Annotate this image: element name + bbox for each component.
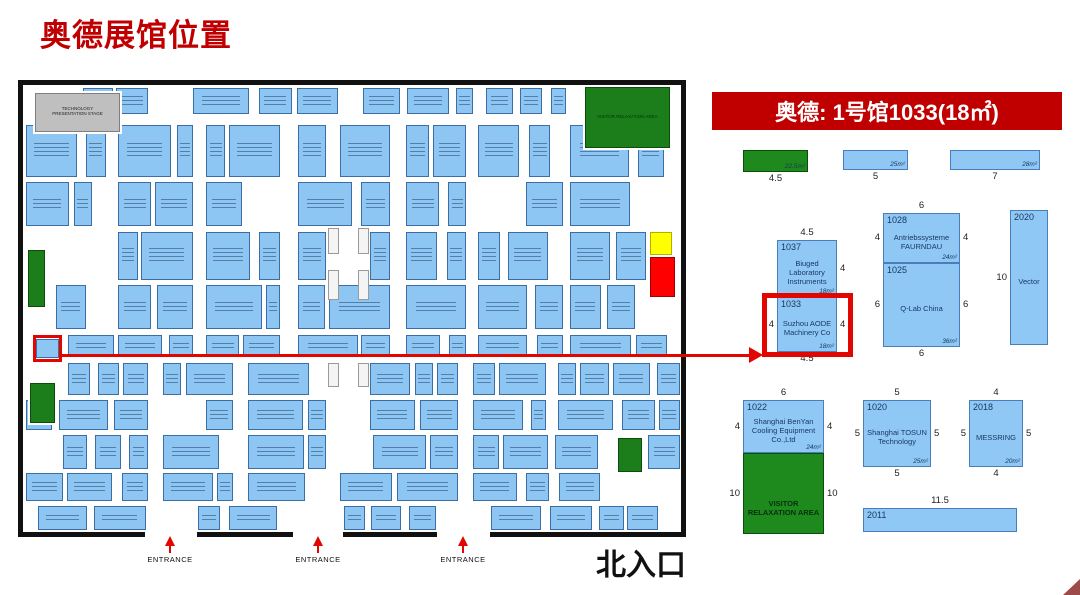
dim-bottom: 4.5: [743, 173, 808, 184]
booth-text-scribble: [237, 515, 270, 521]
map-booth: [193, 88, 249, 114]
booth-text-scribble: [485, 143, 513, 159]
map-booth: [415, 363, 433, 395]
booth-text-scribble: [486, 302, 519, 312]
booth-text-scribble: [102, 374, 116, 384]
pillar: [358, 363, 369, 387]
map-booth: [68, 363, 90, 395]
booth-text-scribble: [486, 343, 519, 349]
map-booth: [123, 363, 148, 395]
map-booth: [206, 232, 250, 280]
booth-text-scribble: [369, 96, 394, 106]
booth-text-scribble: [427, 410, 452, 420]
booth-text-scribble: [411, 248, 431, 264]
booth-text-scribble: [100, 447, 116, 457]
map-booth: [551, 88, 566, 114]
booth-text-scribble: [478, 447, 495, 457]
pointer-arrowhead-icon: [749, 347, 763, 363]
map-booth: [94, 506, 146, 530]
map-booth: [430, 435, 458, 469]
booth-text-scribble: [125, 343, 155, 349]
booth-text-scribble: [257, 447, 295, 457]
booth-text-scribble: [77, 199, 88, 209]
booth-text-scribble: [418, 374, 429, 384]
map-booth: [406, 125, 429, 177]
map-booth: [163, 435, 219, 469]
map-booth: [229, 506, 278, 530]
booth-text-scribble: [374, 248, 387, 264]
map-booth: [559, 473, 600, 501]
entrance-marker: ENTRANCE: [431, 536, 495, 564]
dim-bottom: 5: [843, 171, 908, 182]
booth-text-scribble: [366, 343, 385, 349]
map-booth: [580, 363, 610, 395]
booth-text-scribble: [382, 447, 418, 457]
booth-text-scribble: [180, 143, 190, 159]
booth-text-scribble: [67, 447, 82, 457]
booth-text-scribble: [534, 410, 543, 420]
booth-text-scribble: [414, 515, 431, 521]
booth-text-scribble: [410, 143, 424, 159]
booth-text-scribble: [459, 96, 469, 106]
booth-text-scribble: [566, 482, 593, 492]
map-booth: [259, 88, 292, 114]
map-booth: [370, 400, 415, 430]
booth-text-scribble: [127, 143, 162, 159]
map-booth: [118, 125, 171, 177]
booth-text-scribble: [120, 410, 142, 420]
dim-left: 5: [845, 428, 860, 439]
map-booth: [26, 182, 69, 226]
map-booth: [118, 232, 138, 280]
booth-text-scribble: [173, 343, 189, 349]
booth-text-scribble: [604, 515, 620, 521]
map-booth: [526, 473, 550, 501]
map-booth: [67, 473, 112, 501]
map-booth: [622, 400, 654, 430]
dim-right: 4: [840, 263, 855, 274]
booth-area: 36m²: [942, 338, 957, 345]
booth-text-scribble: [452, 199, 463, 209]
dim-top: 6: [743, 387, 824, 398]
map-booth: [478, 125, 519, 177]
booth-text-scribble: [412, 343, 435, 349]
map-booth: [520, 88, 541, 114]
booth-text-scribble: [303, 302, 320, 312]
map-booth: [297, 88, 338, 114]
map-border-top: [18, 80, 686, 85]
corner-graphic: [1063, 579, 1080, 595]
map-booth: [409, 506, 436, 530]
map-booth: [129, 435, 148, 469]
booth-text-scribble: [127, 482, 144, 492]
detail-booth-green-bar: 22.5m²: [743, 150, 808, 172]
map-booth: [163, 363, 181, 395]
green-area-left-lower: [30, 383, 55, 423]
map-booth: [63, 435, 87, 469]
technology-presentation-stage-label: TECHNOLOGY PRESENTATION STAGE: [46, 107, 108, 118]
map-border-bottom-segment: [343, 532, 437, 537]
entrance-marker: ENTRANCE: [138, 536, 202, 564]
map-booth: [340, 125, 390, 177]
map-booth: [499, 363, 546, 395]
booth-text-scribble: [122, 96, 143, 106]
booth-text-scribble: [452, 343, 462, 349]
dim-left: 6: [865, 299, 880, 310]
map-booth: [206, 125, 225, 177]
map-booth: [308, 400, 326, 430]
booth-text-scribble: [220, 482, 230, 492]
booth-text-scribble: [482, 248, 496, 264]
booth-name: Shanghai TOSUN Technology: [864, 401, 930, 466]
map-booth: [198, 506, 220, 530]
map-booth: [627, 506, 658, 530]
dim-left: 5: [951, 428, 966, 439]
map-booth: [95, 435, 120, 469]
booth-text-scribble: [619, 374, 643, 384]
entrance-label: ENTRANCE: [138, 555, 202, 564]
pillar: [328, 228, 339, 254]
detail-booth-1020: 1020Shanghai TOSUN Technology25m²: [863, 400, 931, 467]
booth-text-scribble: [89, 143, 102, 159]
map-booth: [98, 363, 120, 395]
map-booth: [406, 232, 437, 280]
booth-text-scribble: [149, 248, 184, 264]
map-booth: [370, 232, 390, 280]
north-entrance-label: 北入口: [596, 540, 686, 584]
booth-text-scribble: [481, 410, 515, 420]
booth-number: 2011: [867, 510, 886, 520]
dim-right: 4: [827, 421, 842, 432]
map-booth: [26, 125, 77, 177]
pillar: [328, 270, 339, 300]
booth-text-scribble: [171, 482, 205, 492]
detail-booth-1028: 1028Antriebssysteme FAURNDAU24m²: [883, 213, 960, 263]
booth-text-scribble: [76, 343, 107, 349]
map-booth: [433, 125, 466, 177]
map-booth: [361, 182, 390, 226]
map-border-bottom-segment: [197, 532, 293, 537]
booth-text-scribble: [32, 482, 57, 492]
map-booth: [340, 473, 392, 501]
slide: 奥德展馆位置 TECHNOLOGY PRESENTATION STAGEVISI…: [0, 0, 1080, 595]
map-booth: [657, 363, 680, 395]
booth-text-scribble: [303, 248, 321, 264]
map-booth: [550, 506, 592, 530]
map-booth: [570, 182, 630, 226]
entrance-label: ENTRANCE: [286, 555, 350, 564]
booth-text-scribble: [632, 515, 652, 521]
booth-text-scribble: [269, 302, 278, 312]
booth-text-scribble: [491, 96, 508, 106]
booth-text-scribble: [377, 410, 407, 420]
map-booth: [486, 88, 513, 114]
map-booth: [397, 473, 458, 501]
booth-area: 24m²: [806, 444, 821, 451]
booth-text-scribble: [212, 343, 234, 349]
booth-area: 25m²: [913, 458, 928, 465]
yellow-marker: [650, 232, 672, 255]
booth-text-scribble: [557, 515, 585, 521]
entrance-arrow-icon: [313, 536, 323, 546]
booth-text-scribble: [621, 248, 641, 264]
page-title: 奥德展馆位置: [40, 10, 232, 55]
booth-area: 28m²: [1022, 161, 1037, 168]
map-booth: [478, 285, 527, 329]
dim-right: 5: [934, 428, 949, 439]
map-booth: [206, 285, 262, 329]
booth-text-scribble: [562, 447, 590, 457]
booth-text-scribble: [567, 410, 604, 420]
booth-text-scribble: [439, 143, 461, 159]
detail-booth-2018: 2018MESSRING20m²: [969, 400, 1023, 467]
booth-text-scribble: [575, 302, 595, 312]
booth-text-scribble: [308, 343, 348, 349]
map-border-bottom-segment: [18, 532, 145, 537]
map-booth: [407, 88, 449, 114]
map-booth: [531, 400, 546, 430]
booth-text-scribble: [561, 374, 572, 384]
entrance-arrow-icon: [165, 536, 175, 546]
map-booth: [420, 400, 458, 430]
booth-name: MESSRING: [970, 401, 1022, 466]
booth-text-scribble: [237, 143, 271, 159]
booth-text-scribble: [202, 96, 240, 106]
map-booth: [206, 182, 242, 226]
booth-text-scribble: [506, 374, 538, 384]
booth-text-scribble: [407, 482, 448, 492]
booth-text-scribble: [435, 447, 453, 457]
map-booth: [558, 400, 613, 430]
booth-text-scribble: [499, 515, 533, 521]
detail-booth-bar-25: 25m²: [843, 150, 908, 170]
entrance-marker: ENTRANCE: [286, 536, 350, 564]
booth-text-scribble: [532, 199, 557, 209]
pillar: [358, 270, 369, 300]
map-booth: [86, 125, 106, 177]
booth-name: VISITOR RELAXATION AREA: [744, 454, 823, 533]
map-booth: [456, 88, 473, 114]
entrance-arrow-stem: [169, 546, 171, 553]
booth-text-scribble: [263, 248, 276, 264]
booth-text-scribble: [34, 143, 68, 159]
dim-right: 6: [963, 299, 978, 310]
map-booth: [217, 473, 233, 501]
booth-text-scribble: [412, 199, 434, 209]
map-booth: [38, 506, 87, 530]
booth-text-scribble: [67, 410, 99, 420]
map-booth: [526, 182, 563, 226]
booth-text-scribble: [307, 199, 344, 209]
booth-name: Vector: [1011, 211, 1047, 344]
map-border-right: [681, 80, 686, 537]
detail-booth-2020: 2020Vector: [1010, 210, 1048, 345]
map-booth: [248, 473, 305, 501]
map-booth: [373, 435, 427, 469]
map-booth: [157, 285, 193, 329]
map-booth: [473, 435, 499, 469]
booth-text-scribble: [580, 199, 621, 209]
map-booth: [447, 232, 466, 280]
pointer-line: [61, 354, 749, 357]
booth-text-scribble: [524, 96, 537, 106]
booth-text-scribble: [161, 199, 186, 209]
map-booth: [259, 232, 280, 280]
booth-text-scribble: [249, 343, 274, 349]
booth-area: 25m²: [890, 161, 905, 168]
booth-area: 24m²: [942, 254, 957, 261]
booth-text-scribble: [257, 482, 296, 492]
map-booth: [163, 473, 213, 501]
booth-text-scribble: [311, 447, 322, 457]
booth-text-scribble: [554, 96, 563, 106]
detail-panel: 奥德: 1号馆1033(18㎡) 22.5m²4.525m²528m²71037…: [710, 85, 1078, 560]
booth-text-scribble: [416, 302, 457, 312]
map-booth: [529, 125, 550, 177]
detail-booth-1037: 1037Biuged Laboratory Instruments18m²: [777, 240, 837, 297]
booth-text-scribble: [641, 343, 661, 349]
map-booth: [535, 285, 563, 329]
booth-text-scribble: [339, 302, 380, 312]
booth-text-scribble: [303, 96, 331, 106]
booth-text-scribble: [661, 374, 676, 384]
map-booth: [206, 400, 233, 430]
booth-text-scribble: [72, 374, 86, 384]
dim-top: 11.5: [863, 495, 1017, 506]
map-booth: [298, 182, 352, 226]
map-booth: [248, 435, 304, 469]
map-booth: [613, 363, 649, 395]
detail-booth-bar-28: 28m²: [950, 150, 1040, 170]
booth-text-scribble: [215, 302, 253, 312]
booth-text-scribble: [533, 143, 546, 159]
booth-text-scribble: [377, 374, 403, 384]
booth-text-scribble: [102, 515, 137, 521]
map-booth: [659, 400, 680, 430]
dim-top: 5: [863, 387, 931, 398]
map-border-left: [18, 80, 23, 537]
dim-left: 4: [865, 232, 880, 243]
map-border-bottom-segment: [490, 532, 686, 537]
map-booth: [248, 363, 309, 395]
map-booth: [371, 506, 401, 530]
visitor-relaxation-area-map-label: VISITOR RELAXATION AREA: [597, 115, 658, 120]
map-booth: [298, 125, 326, 177]
map-booth: [248, 400, 303, 430]
map-booth: [118, 285, 151, 329]
map-booth: [406, 285, 466, 329]
pillar: [328, 363, 339, 387]
booth-name: Q-Lab China: [884, 264, 959, 346]
booth-text-scribble: [348, 515, 361, 521]
map-booth: [616, 232, 646, 280]
map-booth: [308, 435, 326, 469]
map-booth: [155, 182, 193, 226]
booth-text-scribble: [376, 515, 396, 521]
dim-bottom: 5: [863, 468, 931, 479]
booth-text-scribble: [480, 482, 509, 492]
entrance-arrow-stem: [462, 546, 464, 553]
map-booth: [118, 182, 151, 226]
booth-text-scribble: [477, 374, 491, 384]
detail-booth-1025: 1025Q-Lab China36m²: [883, 263, 960, 347]
dim-right: 4: [963, 232, 978, 243]
booth-text-scribble: [257, 410, 294, 420]
map-booth: [26, 473, 63, 501]
booth-text-scribble: [128, 374, 144, 384]
booth-text-scribble: [163, 302, 187, 312]
map-booth: [599, 506, 624, 530]
entrance-arrow-icon: [458, 536, 468, 546]
map-booth: [503, 435, 548, 469]
map-booth: [122, 473, 148, 501]
booth-text-scribble: [194, 374, 225, 384]
booth-text-scribble: [414, 96, 442, 106]
map-booth: [298, 232, 326, 280]
map-booth: [298, 285, 325, 329]
map-booth: [570, 232, 610, 280]
pillar: [358, 228, 369, 254]
booth-text-scribble: [210, 410, 228, 420]
booth-text-scribble: [662, 410, 676, 420]
booth-text-scribble: [577, 248, 603, 264]
map-booth: [555, 435, 598, 469]
booth-text-scribble: [540, 302, 558, 312]
map-booth: [607, 285, 635, 329]
booth-text-scribble: [210, 143, 222, 159]
booth-area: 22.5m²: [785, 163, 805, 170]
booth-text-scribble: [654, 447, 675, 457]
booth-text-scribble: [580, 343, 622, 349]
booth-text-scribble: [510, 447, 540, 457]
map-booth: [370, 363, 410, 395]
booth-text-scribble: [450, 248, 462, 264]
booth-text-scribble: [172, 447, 210, 457]
map-booth: [570, 285, 601, 329]
map-booth: [177, 125, 193, 177]
green-area-bottom-mid: [618, 438, 642, 472]
booth-text-scribble: [311, 410, 322, 420]
booth-text-scribble: [166, 374, 177, 384]
map-booth: [508, 232, 549, 280]
booth-text-scribble: [74, 482, 104, 492]
map-booth: [558, 363, 576, 395]
map-booth: [266, 285, 280, 329]
booth-text-scribble: [264, 96, 286, 106]
dim-left: 10: [725, 488, 740, 499]
map-booth: [59, 400, 107, 430]
detail-booth-visitor-area: VISITOR RELAXATION AREA: [743, 453, 824, 534]
dim-left: 4: [725, 421, 740, 432]
dim-bottom: 7: [950, 171, 1040, 182]
technology-presentation-stage: TECHNOLOGY PRESENTATION STAGE: [35, 93, 120, 132]
dim-right: 5: [1026, 428, 1041, 439]
entrance-label: ENTRANCE: [431, 555, 495, 564]
dim-top: 6: [883, 200, 960, 211]
booth-text-scribble: [348, 482, 383, 492]
booth-text-scribble: [541, 343, 558, 349]
map-booth: [473, 400, 523, 430]
booth-text-scribble: [366, 199, 385, 209]
booth-area: 20m²: [1005, 458, 1020, 465]
map-booth: [116, 88, 148, 114]
detail-booth-2011: 2011: [863, 508, 1017, 532]
map-booth: [186, 363, 233, 395]
detail-highlight-frame: [762, 293, 853, 357]
booth-text-scribble: [303, 143, 321, 159]
floor-map: TECHNOLOGY PRESENTATION STAGEVISITOR REL…: [18, 80, 686, 537]
booth-text-scribble: [212, 199, 236, 209]
